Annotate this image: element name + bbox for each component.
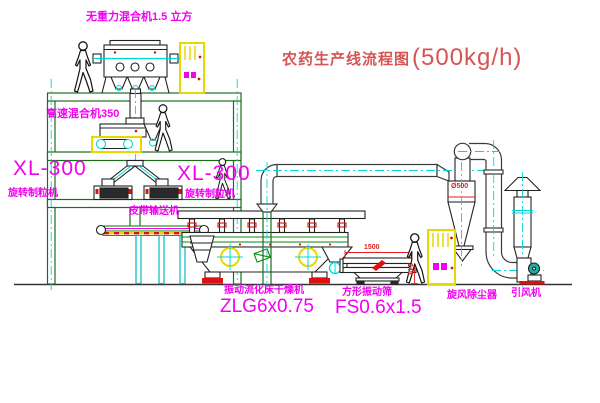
label-high-speed-mixer: 高速混合机350 xyxy=(46,109,119,120)
label-belt-conveyor: 皮带输送机 xyxy=(129,207,179,217)
induced-draft-fan xyxy=(517,258,545,285)
label-granulator-left-name: 旋转制粒机 xyxy=(8,189,58,199)
label-granulator-right-name: 旋转制粒机 xyxy=(185,190,235,200)
person-figure xyxy=(75,42,94,92)
dimension-sieve-height: 345 xyxy=(406,263,413,275)
process-flow-diagram: 农药生产线流程图 (500kg/h) 无重力混合机1.5 立方 高速混合机350… xyxy=(0,0,600,403)
label-dryer-name: 振动流化床干燥机 xyxy=(224,286,304,296)
dimension-sieve-length: 1500 xyxy=(364,244,380,251)
dimension-cyclone-diameter: Ø500 xyxy=(451,183,468,190)
drawing-title: 农药生产线流程图 (500kg/h) xyxy=(282,44,522,72)
control-cabinet-cyclone xyxy=(428,230,455,284)
gravity-mixer xyxy=(93,41,180,94)
label-granulator-right-model: XL-300 xyxy=(177,163,251,184)
granulator-left xyxy=(94,179,132,200)
title-text: 农药生产线流程图 xyxy=(282,48,410,69)
title-capacity: (500kg/h) xyxy=(412,44,522,72)
label-fan-name: 引风机 xyxy=(511,289,541,299)
label-cyclone-name: 旋风除尘器 xyxy=(447,291,497,301)
control-cabinet-top xyxy=(180,43,204,93)
label-gravity-mixer: 无重力混合机1.5 立方 xyxy=(86,12,192,23)
label-granulator-left-model: XL-300 xyxy=(13,158,87,179)
label-sieve-model: FS0.6x1.5 xyxy=(335,298,422,317)
high-speed-mixer xyxy=(92,118,162,152)
label-dryer-model: ZLG6x0.75 xyxy=(220,297,314,316)
